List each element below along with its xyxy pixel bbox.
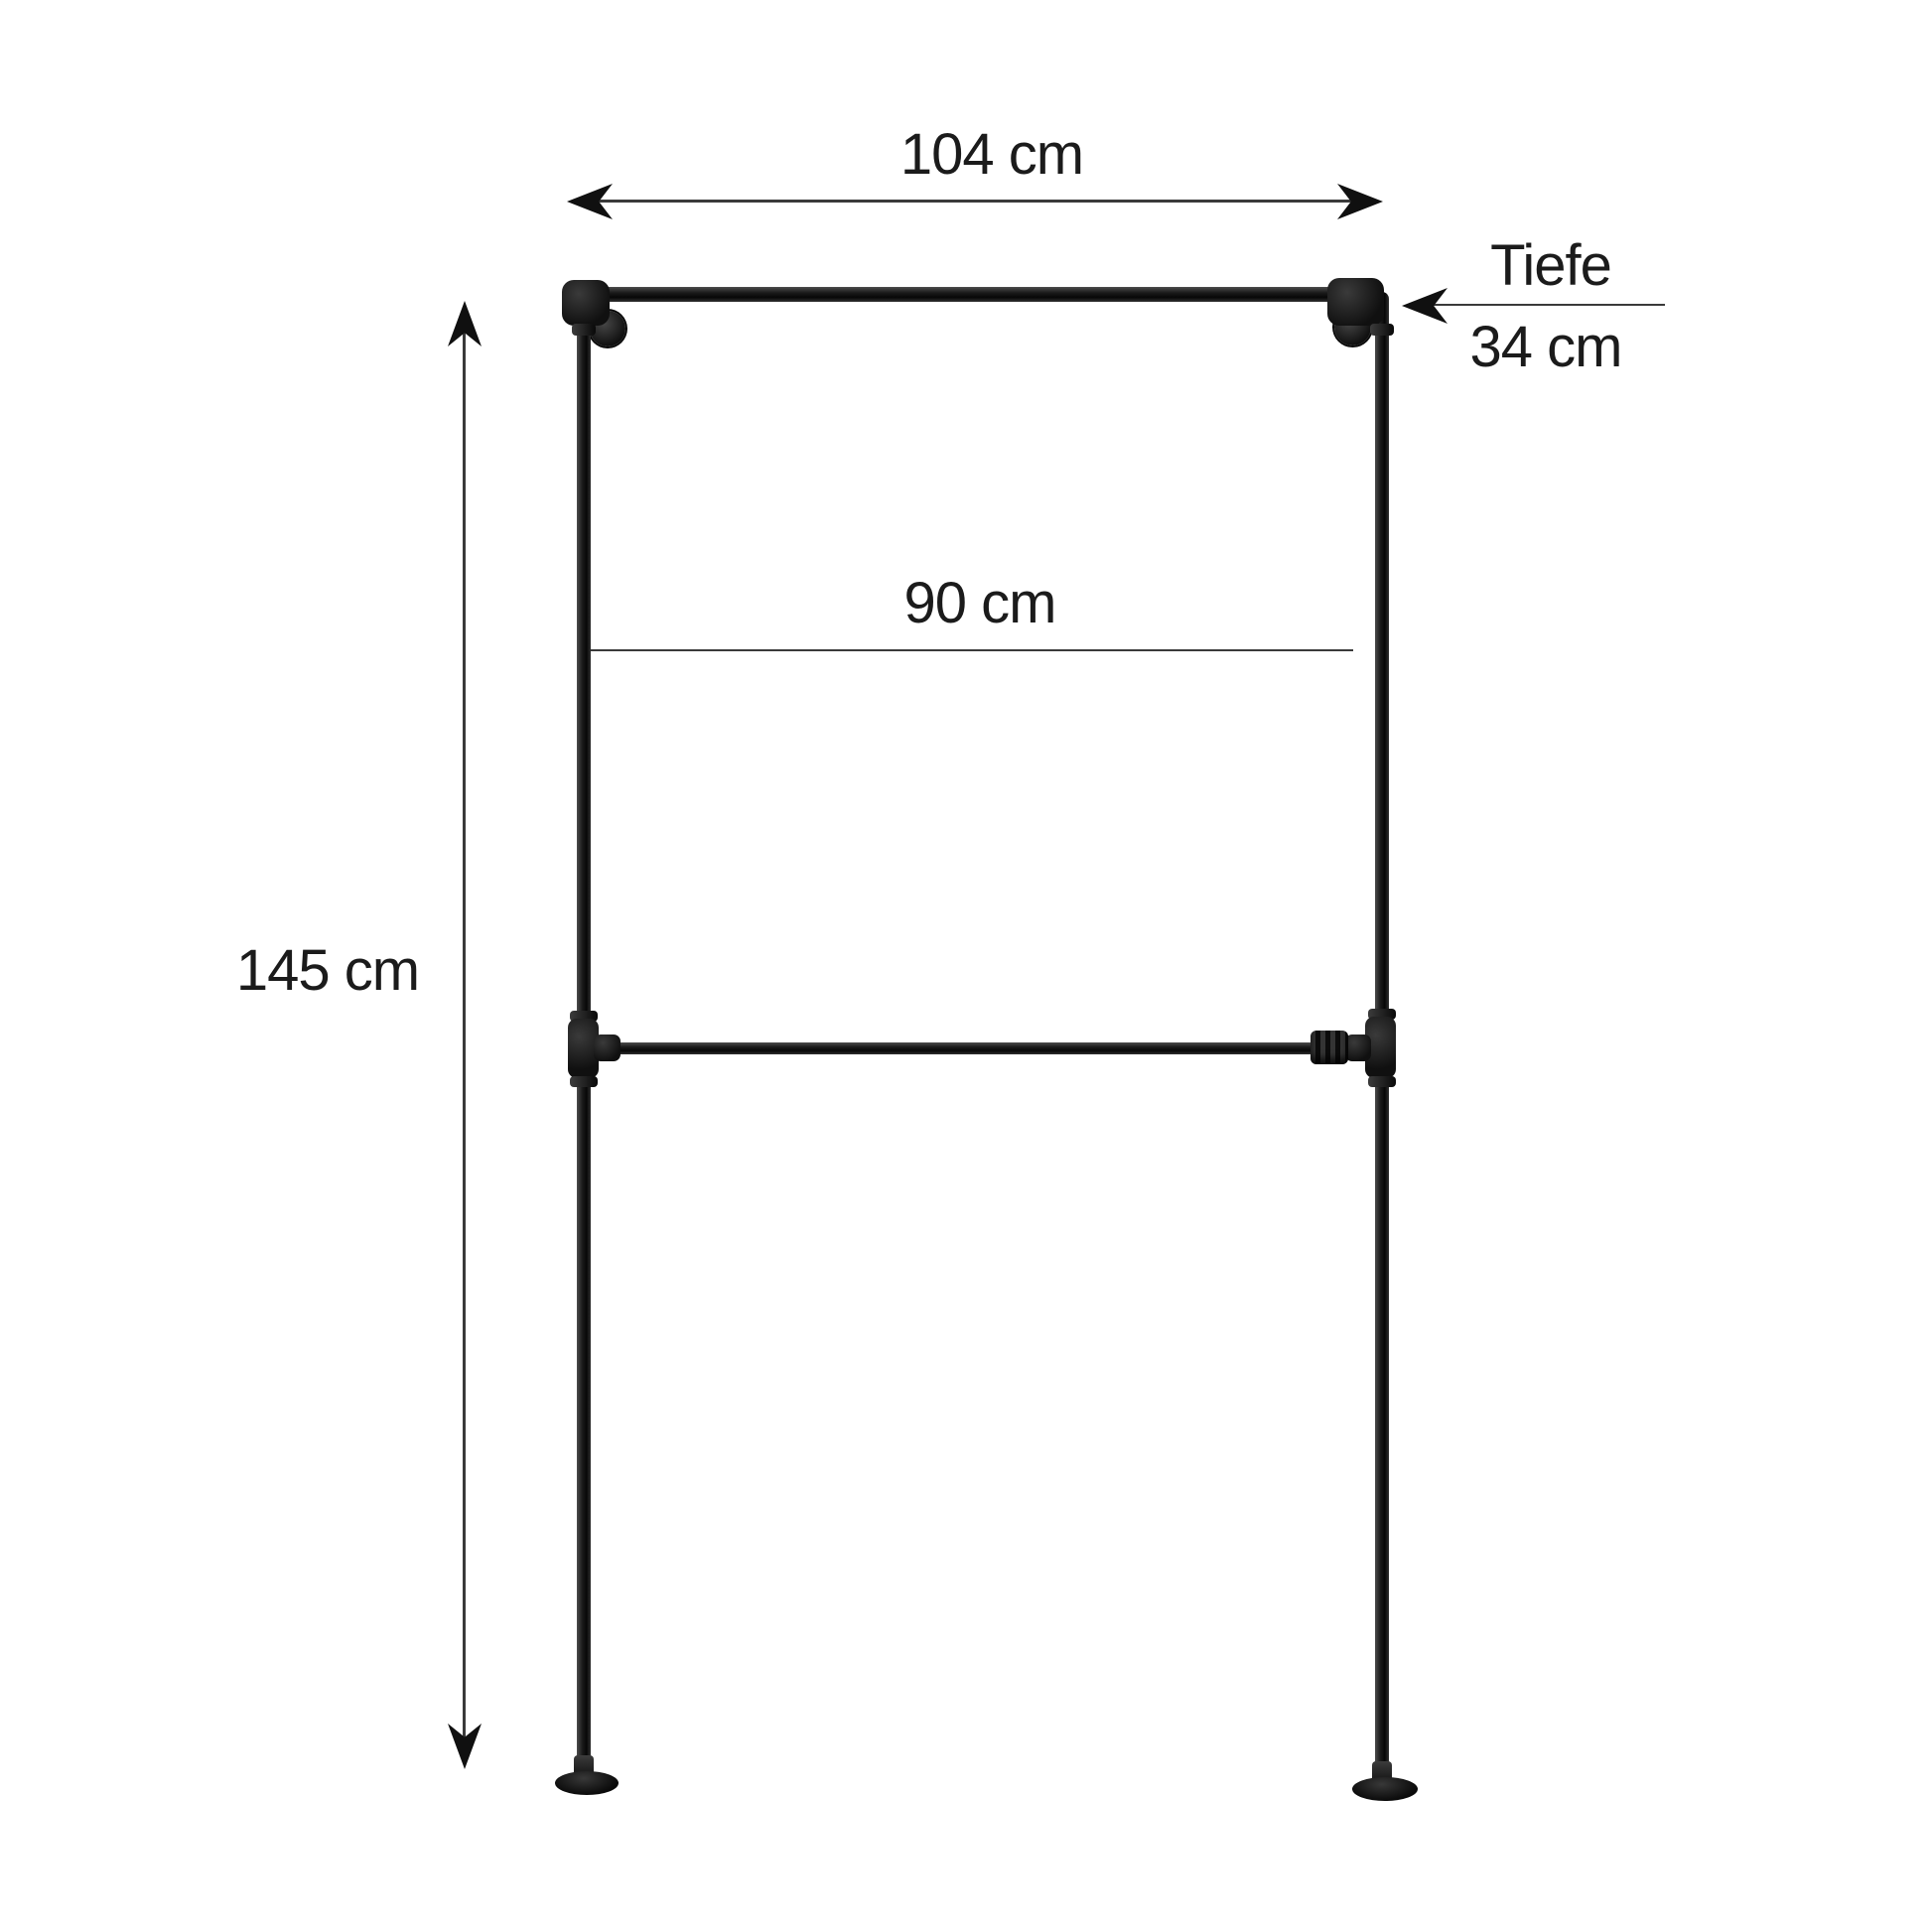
- left-elbow-collar: [572, 324, 596, 336]
- right-foot-flange: [1352, 1777, 1418, 1801]
- diagram-canvas: 104 cm Tiefe 34 cm 145 cm 90 cm: [0, 0, 1932, 1932]
- height-dimension-label: 145 cm: [236, 939, 419, 1003]
- right-tee-collar-bottom: [1368, 1076, 1396, 1087]
- union-coupling: [1311, 1031, 1348, 1064]
- width-dimension-line: [592, 200, 1362, 203]
- depth-dimension-line: [1420, 304, 1665, 306]
- inner-width-dimension-label: 90 cm: [904, 572, 1056, 635]
- left-foot-flange: [555, 1771, 619, 1795]
- left-tee-collar-bottom: [570, 1076, 598, 1087]
- depth-dimension-value: 34 cm: [1470, 316, 1622, 379]
- depth-arrowhead-icon: [1402, 288, 1448, 324]
- width-dimension-label: 104 cm: [900, 123, 1083, 187]
- depth-dimension-label: Tiefe: [1490, 234, 1611, 298]
- top-rail: [579, 287, 1383, 302]
- middle-rail: [592, 1042, 1378, 1054]
- right-tee-socket: [1345, 1035, 1371, 1061]
- height-dimension-line: [463, 328, 466, 1745]
- right-elbow-fitting: [1327, 278, 1384, 326]
- left-tee-socket: [594, 1035, 621, 1061]
- right-elbow-collar: [1370, 324, 1394, 336]
- left-elbow-fitting: [562, 280, 610, 326]
- inner-width-dimension-line: [588, 649, 1353, 651]
